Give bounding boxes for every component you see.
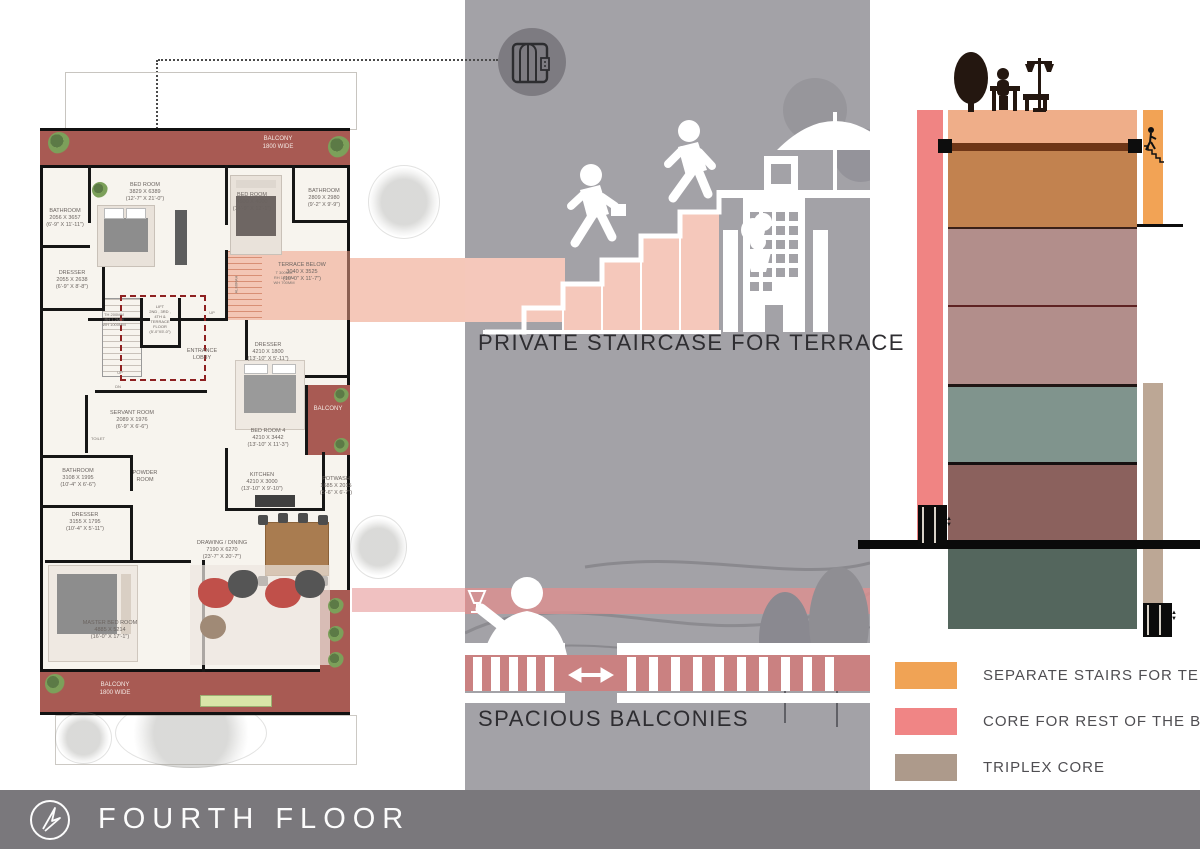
stair-band-base — [1137, 224, 1183, 227]
room-label: DRESSER 3155 X 1795 (10'-4" X 5'-11") — [66, 512, 104, 533]
balcony-bottom — [40, 672, 350, 715]
section-floor-band — [948, 387, 1137, 462]
bed — [235, 360, 305, 430]
person-sitting-icon — [997, 68, 1009, 80]
chair-icon — [764, 156, 798, 192]
elevator-arrows: ▲▼ — [1171, 610, 1177, 622]
legend-swatch — [895, 662, 957, 689]
section-floor-band — [948, 143, 1137, 151]
ottoman — [200, 615, 226, 639]
room-label: BATHROOM 2809 X 2980 (9'-2" X 9'-9") — [308, 188, 340, 209]
presentation-page: { "footer": { "title": "FOURTH FLOOR", "… — [0, 0, 1200, 849]
stove — [255, 495, 295, 507]
briefcase-icon — [611, 204, 626, 216]
roof-outline — [65, 72, 357, 130]
room-label: DN — [115, 384, 121, 389]
room-label: BED ROOM 3829 X 6389 (12'-7" X 21'-0") — [126, 182, 164, 203]
room-label: UP — [117, 370, 123, 375]
room-label: KITCHEN 4210 X 3000 (13'-10" X 9'-10") — [241, 472, 282, 493]
bed — [97, 205, 155, 267]
room-label: T 300MM RH 150MM WH 700MM — [273, 270, 294, 285]
legend-label: SEPARATE STAIRS FOR TERRACE — [983, 667, 1200, 684]
legend-item: SEPARATE STAIRS FOR TERRACE — [895, 662, 1200, 689]
tree-icon — [350, 515, 407, 579]
section-floor-band — [948, 151, 1137, 227]
room-label: BALCONY — [314, 406, 343, 414]
legend-label: TRIPLEX CORE — [983, 759, 1105, 776]
room-label: BED ROOM 4500 X 4000 (14'-9" X 12'-1") — [233, 192, 271, 213]
room-label: BED ROOM 4 4210 X 3442 (13'-10" X 11'-3"… — [247, 428, 288, 449]
lamp-icon — [1038, 58, 1041, 108]
legend-label: CORE FOR REST OF THE BUILDING — [983, 713, 1200, 730]
room-label: POTWASH 1685 X 2015 (5'-6" X 6'-7") — [320, 476, 352, 497]
bed — [230, 175, 282, 255]
room-label: DRESSER 2055 X 2638 (6'-9" X 8'-8") — [56, 270, 88, 291]
section-core-band — [917, 110, 943, 543]
slab-cap — [938, 139, 952, 153]
page-title: FOURTH FLOOR — [98, 803, 410, 836]
wardrobe — [175, 210, 187, 265]
person-climbing-icon — [668, 120, 712, 198]
floor-plan: BED ROOM 3829 X 6389 (12'-7" X 21'-0")BE… — [40, 70, 370, 770]
bench-icon — [1023, 94, 1049, 100]
room-label: LIFT 2ND , 3RD , 4TH & TERRACE FLOOR (5'… — [149, 304, 171, 334]
legend-swatch — [895, 708, 957, 735]
elevator-arrows: ▲▼ — [946, 516, 952, 528]
elevator-icon — [918, 505, 947, 545]
room-label: UP — [209, 310, 215, 315]
section-floor-band — [948, 465, 1137, 541]
room-label: MASTER BED ROOM 4885 X 5214 (16'-0" X 17… — [83, 620, 137, 641]
terrace-silhouettes — [935, 52, 1065, 112]
room-label: BATHROOM 3108 X 1995 (10'-4" X 6'-6") — [60, 468, 95, 489]
section-floor-band — [948, 110, 1137, 143]
room-label: BATHROOM 2056 X 3657 (6'-9" X 11'-11") — [46, 208, 84, 229]
balconies-caption: SPACIOUS BALCONIES — [478, 706, 749, 732]
compass-arrow-icon — [28, 798, 72, 842]
room-label: SERVANT ROOM 2089 X 1976 (6'-9" X 6'-6") — [110, 410, 154, 431]
section-triplex-band — [1143, 383, 1163, 605]
staircase-illustration — [465, 0, 870, 360]
balcony-top — [40, 128, 350, 168]
room-label: BALCONY 1800 WIDE — [100, 682, 131, 697]
tree-icon — [55, 712, 112, 764]
room-label: ENTRANCE LOBBY — [187, 348, 217, 362]
room-label: TOILET — [91, 436, 105, 441]
tree-icon — [954, 52, 988, 104]
legend-item: CORE FOR REST OF THE BUILDING — [895, 708, 1200, 735]
section-floor-band — [948, 307, 1137, 384]
tree-icon — [368, 165, 440, 239]
section-basement — [948, 549, 1137, 629]
slab-cap — [1128, 139, 1142, 153]
legend-item: TRIPLEX CORE — [895, 754, 1105, 781]
staircase-caption: PRIVATE STAIRCASE FOR TERRACE — [478, 330, 905, 356]
person-climbing-icon — [571, 164, 626, 243]
section-floor-stack — [948, 110, 1137, 541]
room-label: TH 200MM RH 1.2MM WH 1000MM — [102, 312, 125, 327]
ground-line — [858, 540, 1200, 549]
section-floor-band — [948, 229, 1137, 305]
planter — [200, 695, 272, 707]
footer-bar: FOURTH FLOOR — [0, 790, 1200, 849]
room-label: ALMIRAH — [234, 276, 239, 294]
room-label: BALCONY 1800 WIDE — [263, 136, 294, 151]
elevator-icon — [1143, 603, 1172, 637]
room-label: DRAWING / DINING 7190 X 6270 (23'-7" X 2… — [197, 540, 247, 561]
room-label: DRESSER 4210 X 1800 (13'-10" X 5'-11") — [247, 342, 288, 363]
room-label: POWDER ROOM — [133, 470, 158, 484]
person-on-stairs-icon — [1142, 126, 1164, 166]
bed — [48, 565, 138, 662]
lift-connector-horizontal — [158, 59, 498, 61]
sofa — [295, 570, 325, 598]
legend-swatch — [895, 754, 957, 781]
